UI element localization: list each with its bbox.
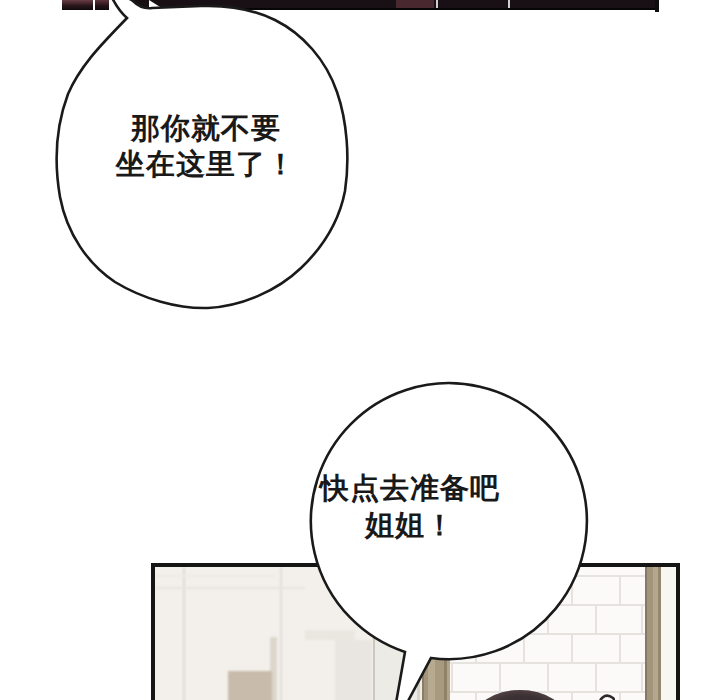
bubble-1-line-1: 那你就不要 <box>58 110 354 146</box>
bubble-1-text: 那你就不要 坐在这里了！ <box>58 110 354 182</box>
bubble-2-line-1: 快点去准备吧 <box>283 470 537 507</box>
bubble-2-line-2: 姐姐！ <box>283 507 537 544</box>
comic-page: 那你就不要 坐在这里了！ 快点去准备吧 姐姐！ <box>0 0 720 700</box>
bubble-2-text: 快点去准备吧 姐姐！ <box>283 470 537 544</box>
bubble-1-line-2: 坐在这里了！ <box>58 146 354 182</box>
speech-bubbles-layer <box>0 0 720 700</box>
